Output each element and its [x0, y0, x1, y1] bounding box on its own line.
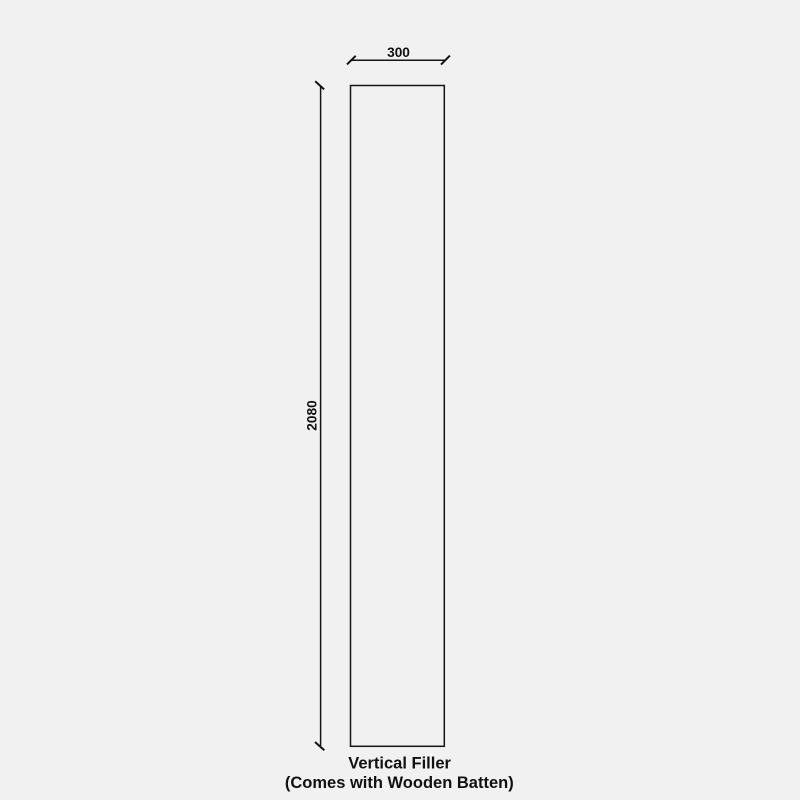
svg-text:(Comes with Wooden Batten): (Comes with Wooden Batten): [285, 774, 514, 792]
svg-text:300: 300: [387, 45, 410, 60]
svg-text:2080: 2080: [305, 400, 320, 431]
svg-text:Vertical Filler: Vertical Filler: [348, 754, 451, 772]
